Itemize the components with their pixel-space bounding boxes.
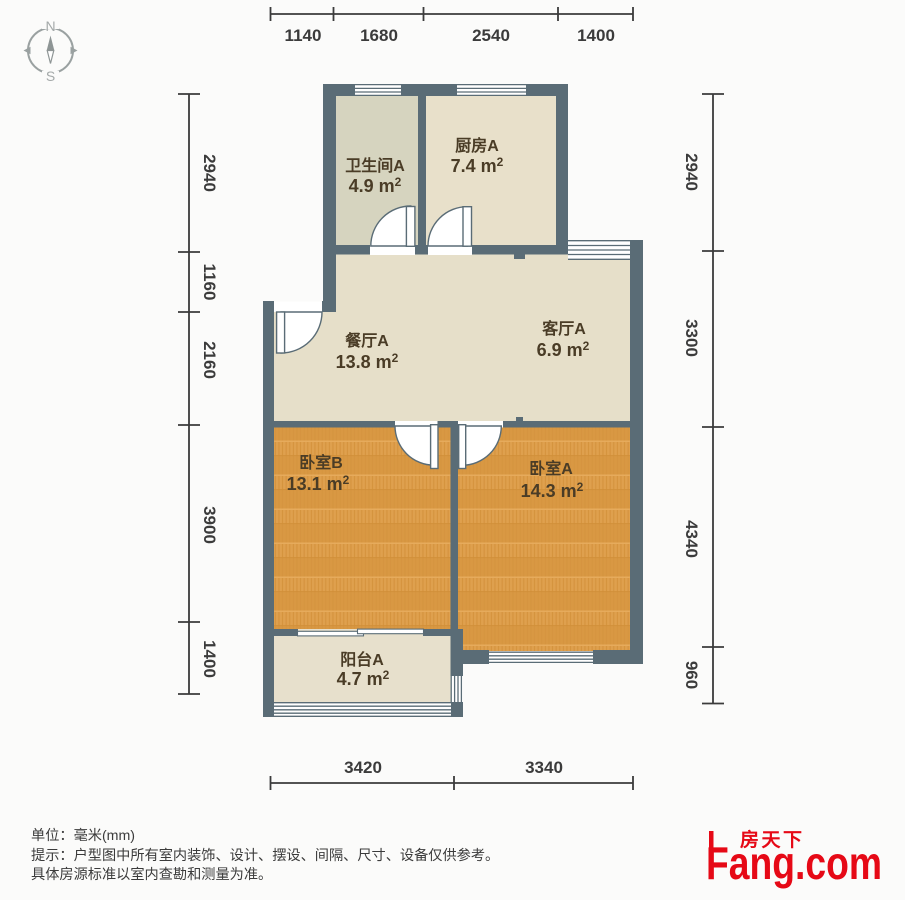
svg-text:阳台A: 阳台A (340, 650, 384, 669)
svg-text:6.9 m2: 6.9 m2 (537, 339, 590, 360)
svg-text:960: 960 (682, 661, 701, 689)
svg-text:1140: 1140 (285, 26, 322, 45)
svg-text:13.8 m2: 13.8 m2 (336, 351, 399, 372)
svg-text:1400: 1400 (200, 640, 219, 678)
svg-text:单位：毫米(mm): 单位：毫米(mm) (31, 827, 135, 844)
svg-text:1400: 1400 (577, 26, 615, 45)
svg-text:3900: 3900 (200, 506, 219, 544)
svg-text:餐厅A: 餐厅A (344, 331, 389, 350)
svg-text:1160: 1160 (200, 264, 219, 301)
svg-text:提示：户型图中所有室内装饰、设计、摆设、间隔、尺寸、设备仅供: 提示：户型图中所有室内装饰、设计、摆设、间隔、尺寸、设备仅供参考。 (31, 847, 499, 864)
svg-text:3420: 3420 (344, 758, 382, 777)
svg-text:4.9 m2: 4.9 m2 (349, 175, 402, 196)
svg-text:2940: 2940 (682, 153, 701, 191)
svg-text:卧室A: 卧室A (529, 459, 573, 478)
svg-text:7.4 m2: 7.4 m2 (451, 155, 504, 176)
svg-text:2540: 2540 (472, 26, 510, 45)
svg-text:3300: 3300 (682, 319, 701, 357)
svg-text:1680: 1680 (360, 26, 398, 45)
svg-text:Fang.com: Fang.com (706, 837, 882, 889)
svg-text:2160: 2160 (200, 341, 219, 379)
svg-text:厨房A: 厨房A (455, 136, 499, 155)
svg-text:13.1 m2: 13.1 m2 (287, 473, 350, 494)
svg-text:客厅A: 客厅A (542, 319, 586, 338)
svg-text:4.7 m2: 4.7 m2 (337, 668, 390, 689)
svg-text:N: N (45, 18, 55, 34)
svg-text:S: S (46, 68, 55, 84)
svg-text:3340: 3340 (525, 758, 563, 777)
svg-text:卧室B: 卧室B (299, 453, 343, 472)
svg-text:4340: 4340 (682, 520, 701, 558)
svg-text:具体房源标准以室内查勘和测量为准。: 具体房源标准以室内查勘和测量为准。 (31, 866, 272, 883)
svg-text:卫生间A: 卫生间A (345, 156, 405, 175)
svg-text:2940: 2940 (200, 154, 219, 192)
svg-text:14.3 m2: 14.3 m2 (521, 480, 584, 501)
